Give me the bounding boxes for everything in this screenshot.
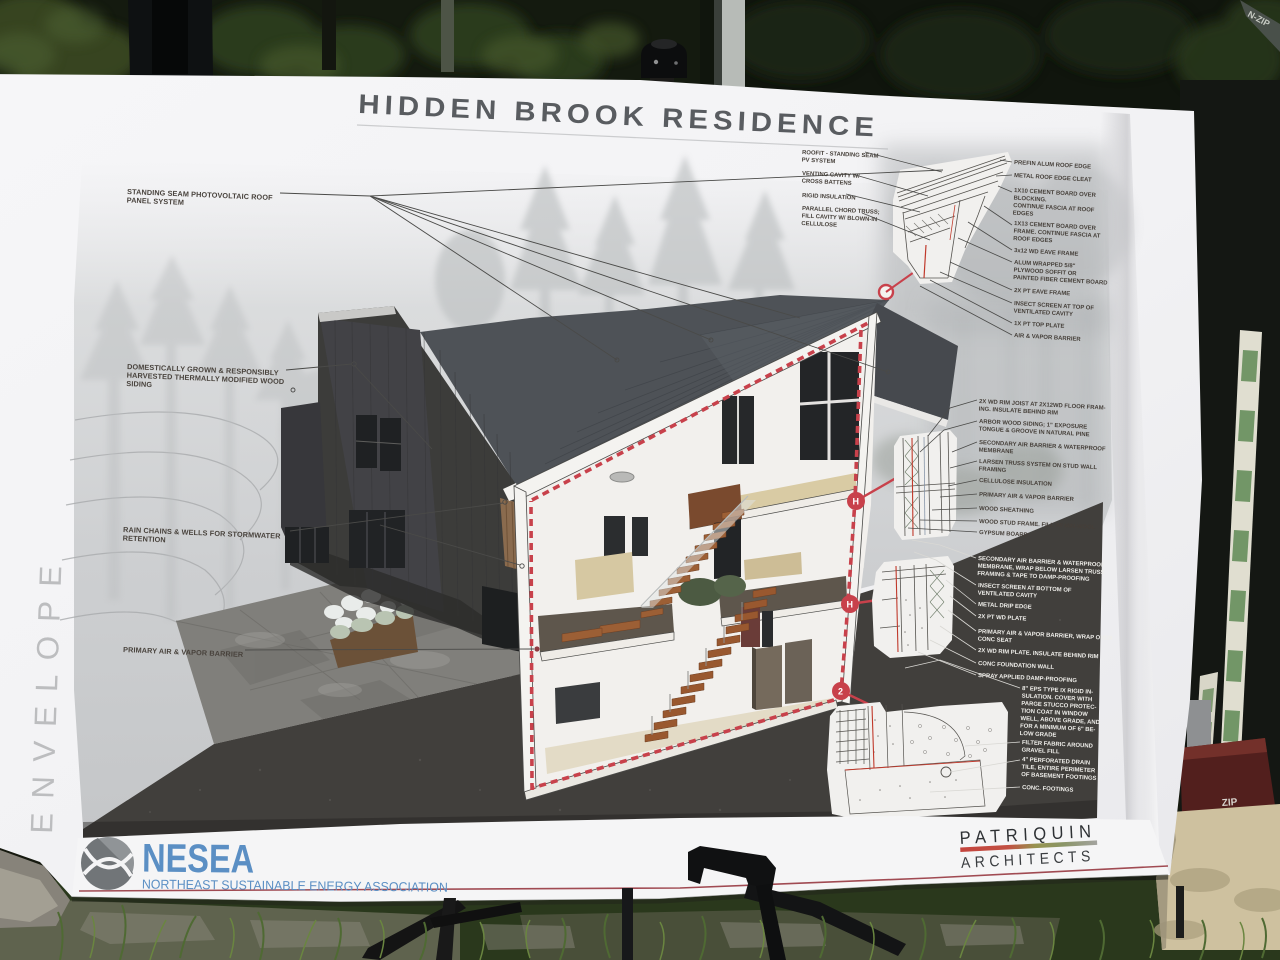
svg-text:2: 2 <box>838 687 843 697</box>
svg-text:SIDING: SIDING <box>126 379 152 389</box>
svg-text:ZIP: ZIP <box>1221 797 1238 809</box>
svg-text:EDGES: EDGES <box>1013 210 1034 217</box>
svg-text:RETENTION: RETENTION <box>123 533 166 544</box>
svg-text:H: H <box>853 497 860 507</box>
svg-text:NORTHEAST SUSTAINABLE ENERGY A: NORTHEAST SUSTAINABLE ENERGY ASSOCIATION <box>142 876 448 894</box>
svg-text:NESEA: NESEA <box>142 836 254 881</box>
svg-text:H: H <box>847 600 854 610</box>
